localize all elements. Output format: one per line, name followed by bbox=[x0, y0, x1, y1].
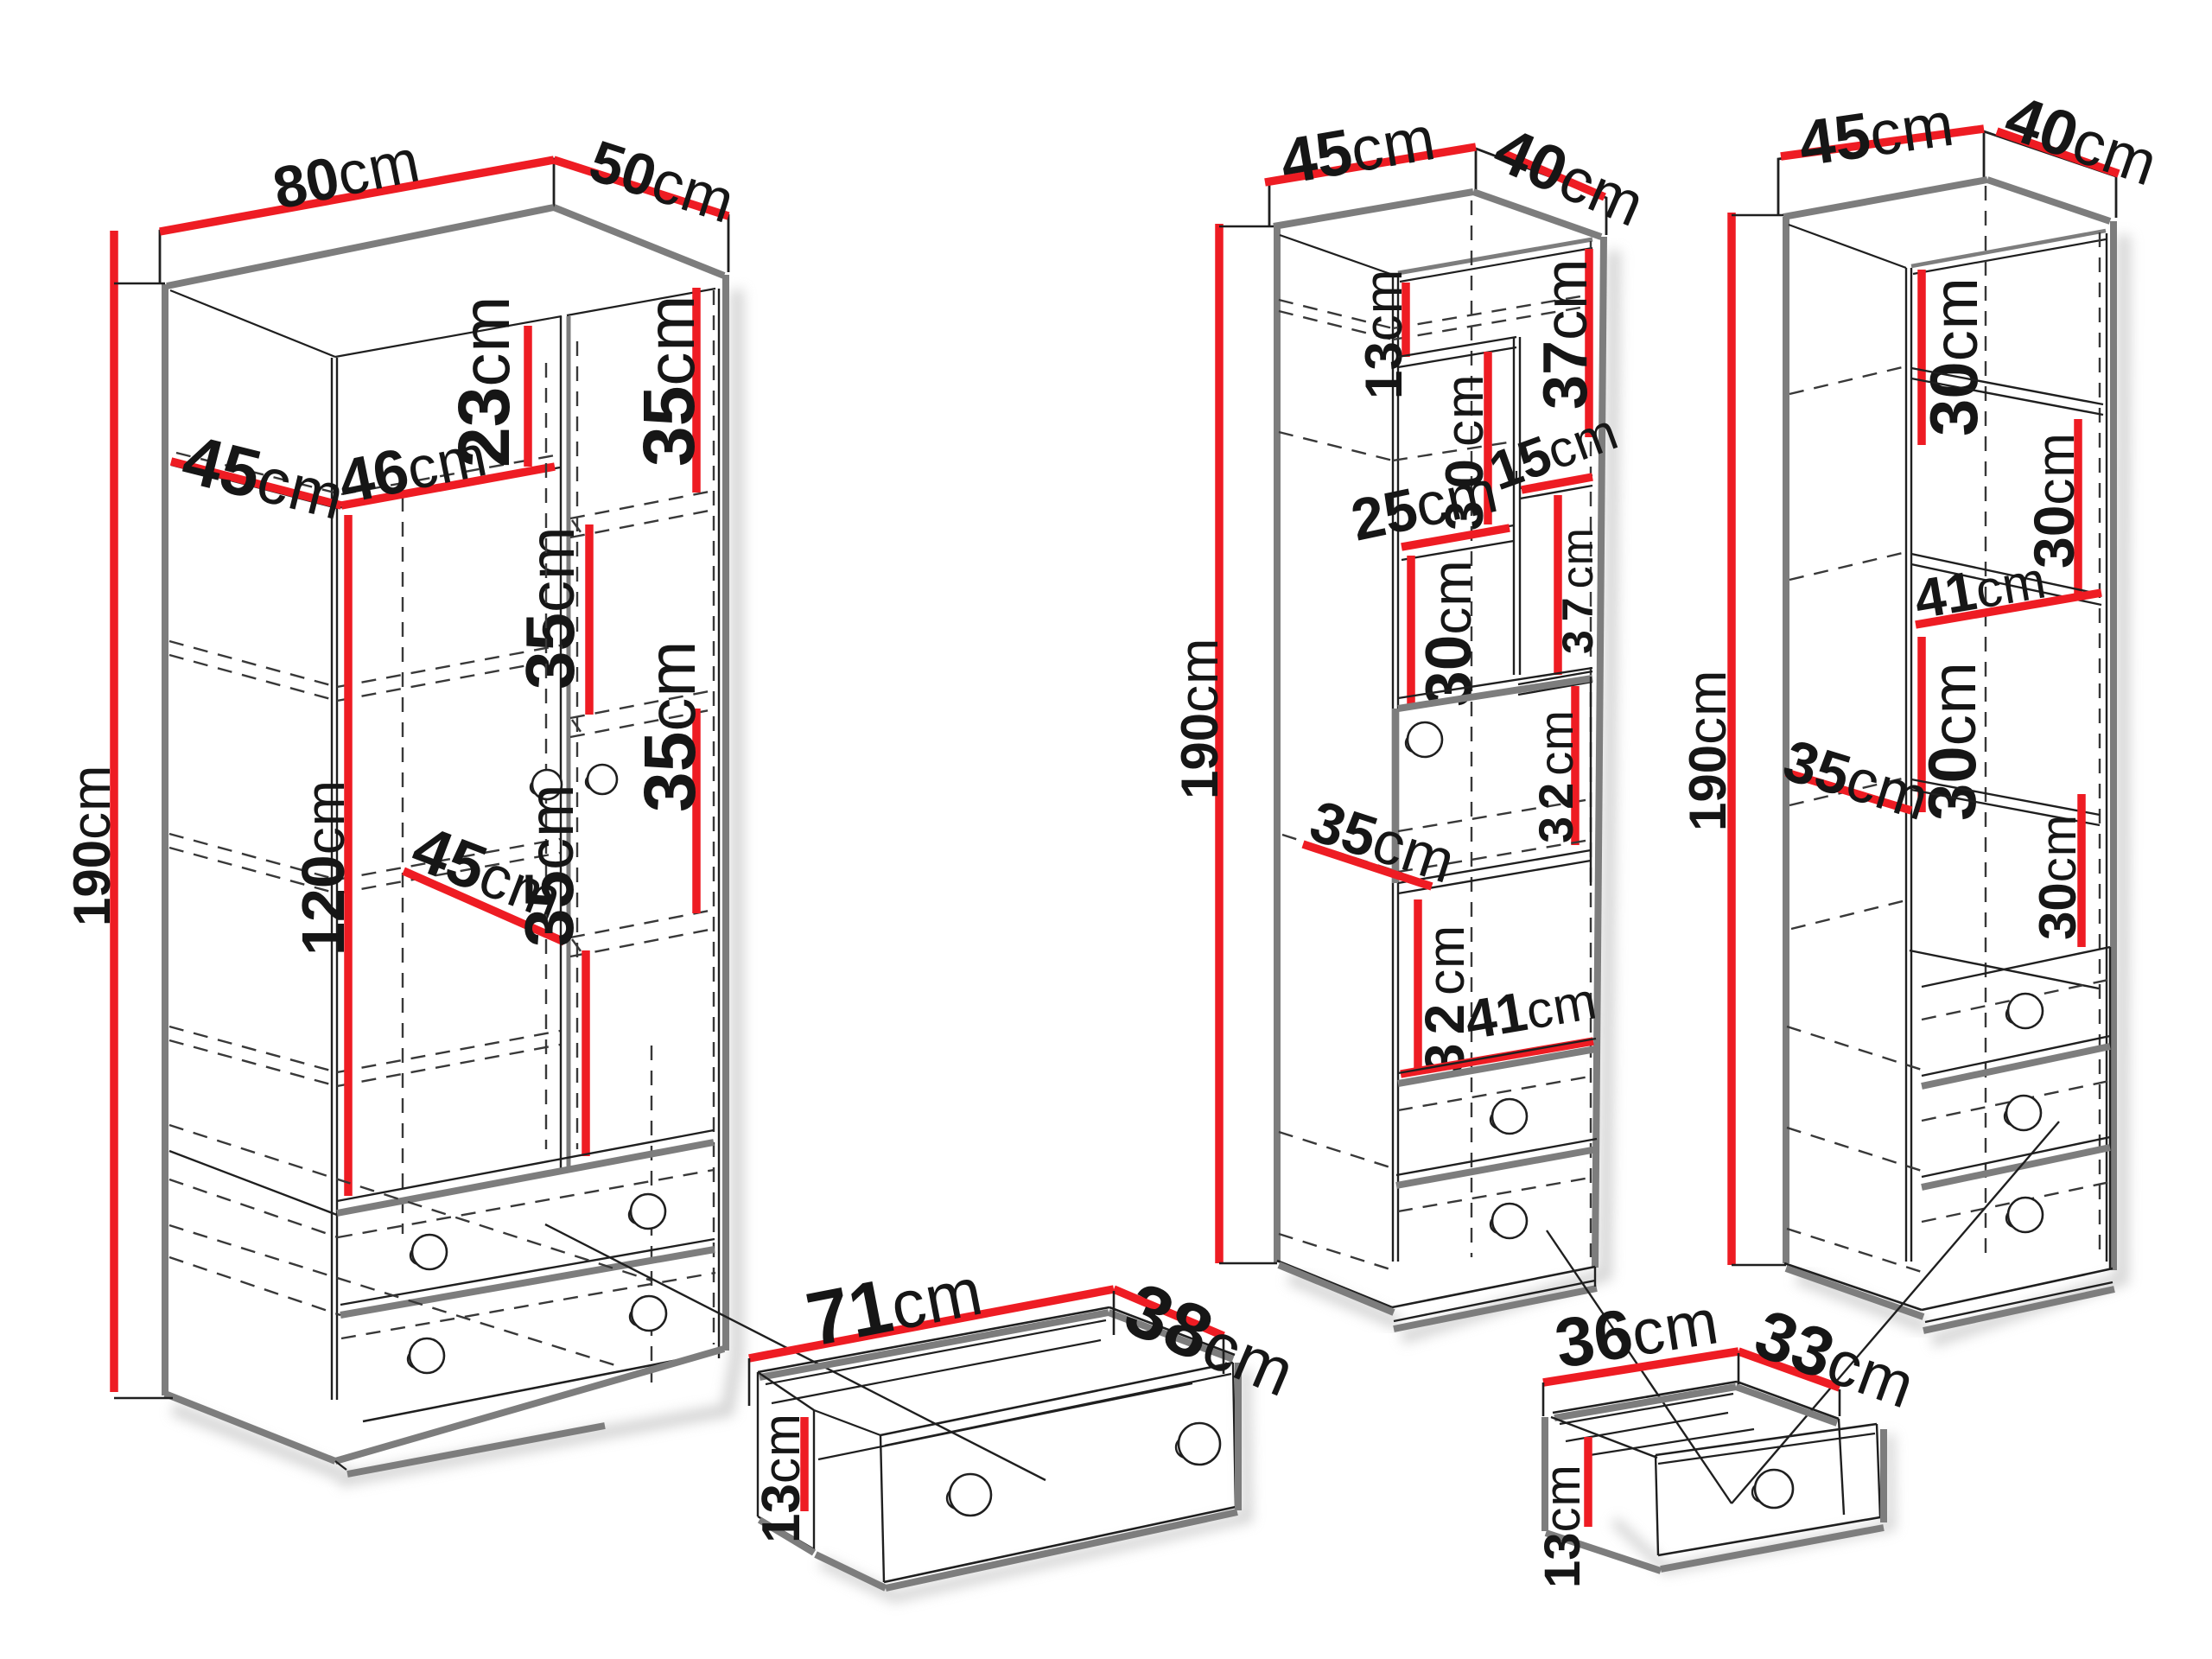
svg-text:30cm: 30cm bbox=[2022, 432, 2086, 569]
svg-text:23cm: 23cm bbox=[443, 296, 524, 467]
svg-text:30cm: 30cm bbox=[2029, 814, 2087, 940]
svg-text:30cm: 30cm bbox=[1916, 276, 1992, 436]
svg-text:190cm: 190cm bbox=[60, 765, 122, 926]
svg-text:30cm: 30cm bbox=[1412, 559, 1484, 707]
svg-text:37cm: 37cm bbox=[1531, 258, 1600, 410]
svg-text:13cm: 13cm bbox=[752, 1413, 811, 1543]
svg-text:35cm: 35cm bbox=[629, 640, 710, 812]
svg-text:13cm: 13cm bbox=[1354, 269, 1414, 399]
svg-text:35cm: 35cm bbox=[511, 783, 588, 947]
svg-text:190cm: 190cm bbox=[1675, 670, 1738, 831]
svg-text:35cm: 35cm bbox=[628, 295, 709, 467]
svg-text:37cm: 37cm bbox=[1553, 527, 1603, 654]
svg-text:32cm: 32cm bbox=[1529, 709, 1583, 843]
svg-text:190cm: 190cm bbox=[1167, 638, 1230, 799]
svg-text:120cm: 120cm bbox=[289, 779, 357, 956]
svg-text:13cm: 13cm bbox=[1535, 1464, 1591, 1588]
